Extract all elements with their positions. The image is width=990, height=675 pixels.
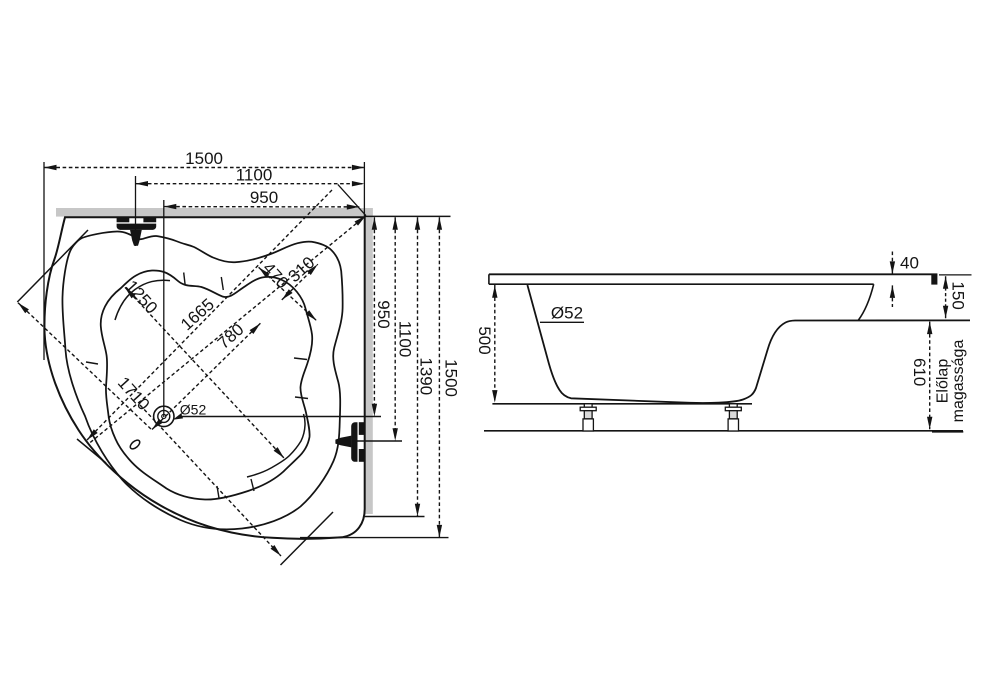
- svg-text:780: 780: [214, 320, 248, 353]
- svg-text:Ø52: Ø52: [180, 402, 207, 418]
- svg-text:1100: 1100: [236, 166, 273, 185]
- svg-text:610: 610: [910, 358, 929, 386]
- svg-text:1390: 1390: [417, 357, 436, 395]
- svg-text:1100: 1100: [395, 321, 414, 358]
- svg-text:Előlapmagassága: Előlapmagassága: [935, 340, 968, 423]
- svg-text:40: 40: [900, 254, 919, 273]
- svg-text:1500: 1500: [185, 149, 223, 168]
- svg-text:Ø52: Ø52: [551, 304, 583, 323]
- svg-text:1710: 1710: [114, 373, 153, 414]
- svg-text:1665: 1665: [177, 295, 218, 334]
- svg-text:150: 150: [948, 281, 967, 309]
- svg-text:950: 950: [250, 188, 278, 207]
- svg-text:1500: 1500: [441, 359, 460, 397]
- svg-text:950: 950: [374, 300, 393, 328]
- svg-text:500: 500: [475, 326, 494, 354]
